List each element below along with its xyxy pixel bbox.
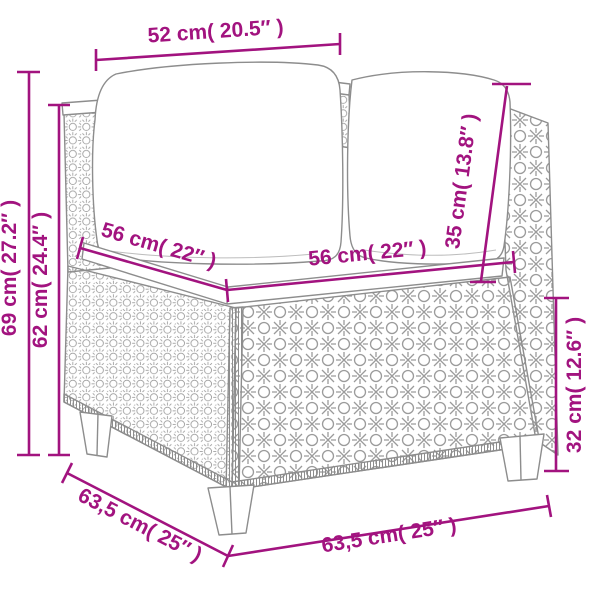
foot-right xyxy=(500,434,544,481)
dim-overall-depth xyxy=(62,463,233,567)
overall-height-label: 69 cm( 27.2″ ) xyxy=(0,200,21,336)
foot-right-edge xyxy=(520,436,521,480)
base-height-label: 32 cm( 12.6″ ) xyxy=(563,317,586,453)
back-cushion-width-label: 52 cm( 20.5″ ) xyxy=(147,16,284,48)
base-front-face-wicker xyxy=(232,277,540,490)
diagram-canvas: 52 cm( 20.5″ ) 69 cm( 27.2″ ) 62 cm( 24.… xyxy=(0,0,600,600)
overall-depth-label: 63,5 cm( 25″ ) xyxy=(74,484,206,567)
base-left-face-wicker xyxy=(64,266,236,490)
seat-back-height-label: 62 cm( 24.4″ ) xyxy=(29,212,52,348)
overall-width-label: 63,5 cm( 25″ ) xyxy=(320,514,458,558)
product-dimension-diagram: 52 cm( 20.5″ ) 69 cm( 27.2″ ) 62 cm( 24.… xyxy=(0,0,600,600)
sofa-illustration xyxy=(62,62,558,535)
foot-left xyxy=(80,412,112,457)
foot-left-edge xyxy=(97,413,98,455)
